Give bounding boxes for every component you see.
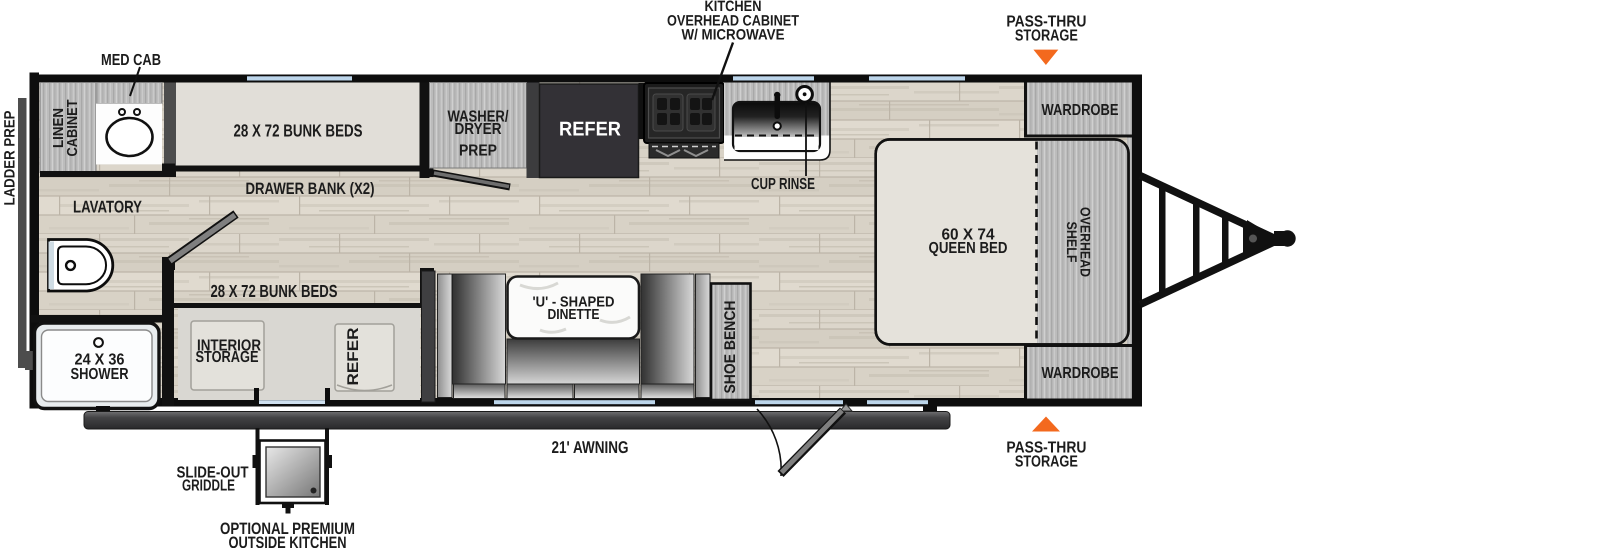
svg-text:STORAGE: STORAGE: [196, 349, 259, 366]
svg-text:DINETTE: DINETTE: [548, 307, 600, 323]
svg-text:QUEEN BED: QUEEN BED: [929, 240, 1008, 257]
svg-text:28 X 72 BUNK BEDS: 28 X 72 BUNK BEDS: [234, 121, 363, 141]
svg-text:STORAGE: STORAGE: [1015, 454, 1078, 471]
svg-text:GRIDDLE: GRIDDLE: [182, 478, 235, 495]
svg-text:MED CAB: MED CAB: [101, 52, 161, 69]
svg-text:CUP RINSE: CUP RINSE: [751, 176, 815, 193]
svg-text:LAVATORY: LAVATORY: [73, 197, 143, 216]
svg-text:REFER: REFER: [345, 328, 362, 386]
svg-text:21' AWNING: 21' AWNING: [552, 438, 629, 457]
svg-text:WARDROBE: WARDROBE: [1042, 365, 1119, 382]
svg-text:SHELF: SHELF: [1064, 222, 1080, 263]
svg-text:PREP: PREP: [459, 142, 497, 159]
svg-text:CABINET: CABINET: [65, 99, 81, 156]
svg-text:DRAWER BANK (X2): DRAWER BANK (X2): [246, 180, 375, 198]
svg-text:STORAGE: STORAGE: [1015, 28, 1078, 45]
svg-text:DRYER: DRYER: [455, 121, 502, 138]
svg-text:LADDER PREP: LADDER PREP: [2, 111, 19, 206]
svg-text:SHOWER: SHOWER: [71, 366, 129, 383]
svg-text:W/ MICROWAVE: W/ MICROWAVE: [682, 26, 785, 43]
svg-text:REFER: REFER: [559, 119, 621, 141]
svg-text:28 X 72 BUNK BEDS: 28 X 72 BUNK BEDS: [211, 281, 338, 301]
svg-text:SHOE BENCH: SHOE BENCH: [722, 301, 739, 394]
svg-text:WARDROBE: WARDROBE: [1042, 102, 1119, 119]
svg-text:OUTSIDE KITCHEN: OUTSIDE KITCHEN: [229, 534, 347, 548]
